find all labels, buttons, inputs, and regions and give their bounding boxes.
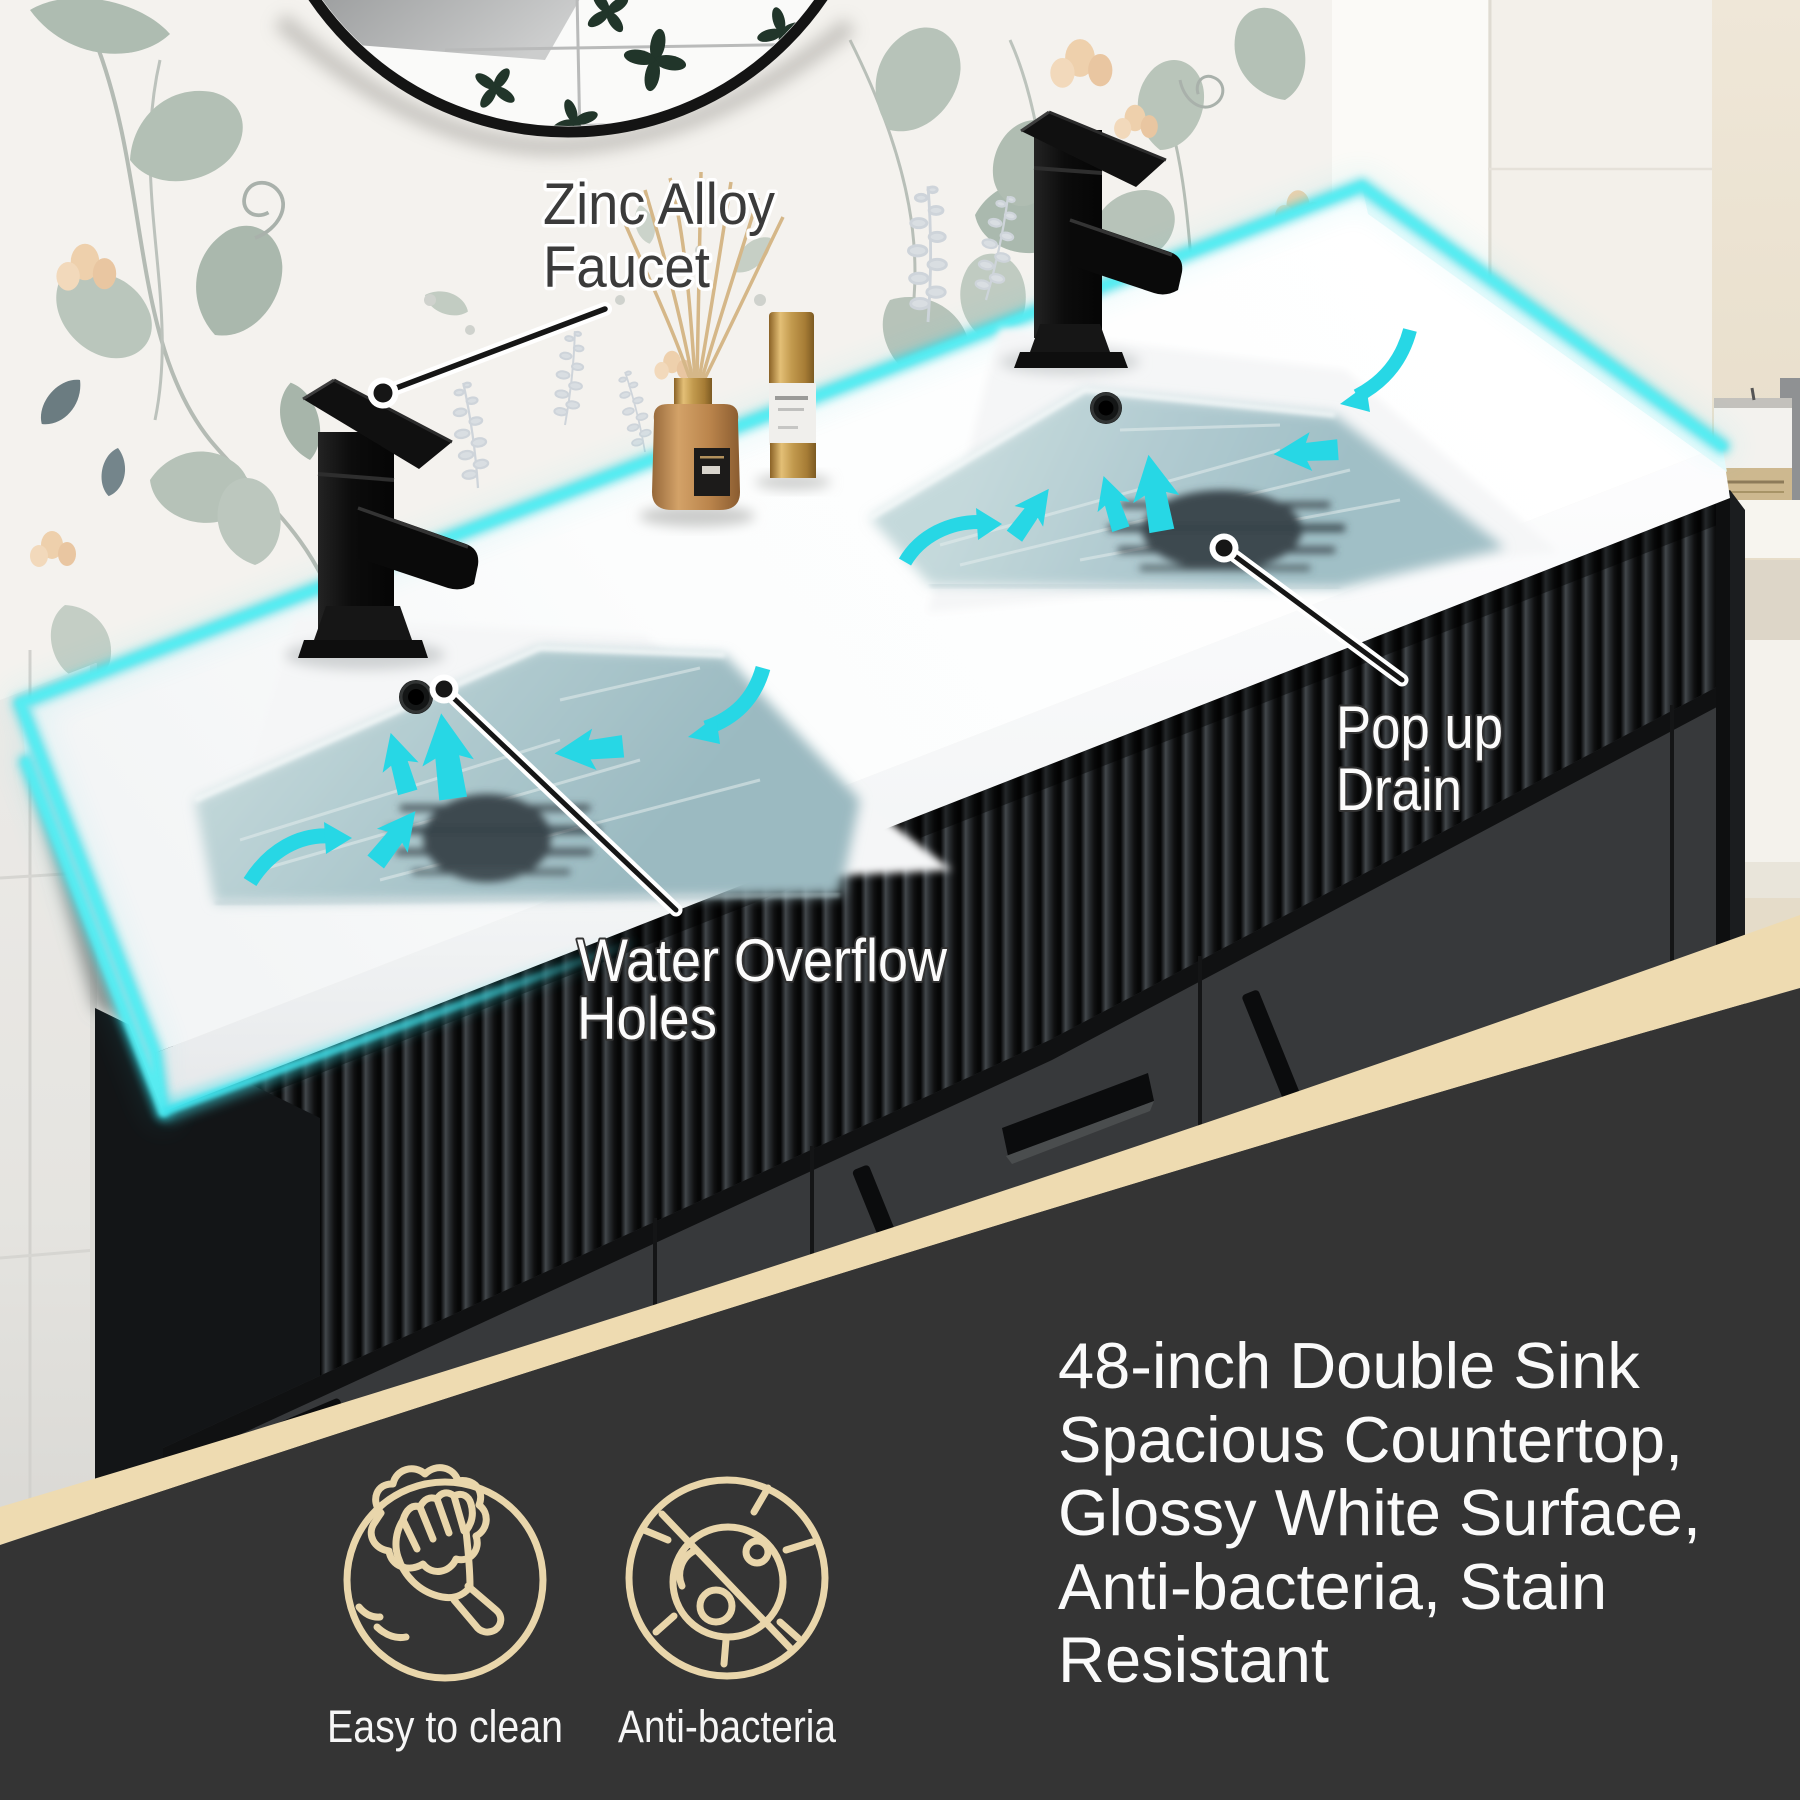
svg-text:Zinc Alloy: Zinc Alloy	[543, 172, 775, 237]
svg-text:Spacious Countertop,: Spacious Countertop,	[1058, 1403, 1683, 1476]
svg-text:Pop up: Pop up	[1336, 694, 1503, 761]
svg-text:Easy to clean: Easy to clean	[327, 1701, 563, 1752]
svg-text:Drain: Drain	[1336, 756, 1462, 823]
svg-text:Holes: Holes	[577, 985, 717, 1052]
svg-text:Anti-bacteria: Anti-bacteria	[618, 1701, 837, 1752]
svg-text:48-inch Double Sink: 48-inch Double Sink	[1058, 1329, 1640, 1402]
svg-text:Glossy White Surface,: Glossy White Surface,	[1058, 1476, 1701, 1549]
svg-text:Anti-bacteria, Stain: Anti-bacteria, Stain	[1058, 1550, 1607, 1623]
svg-text:Water Overflow: Water Overflow	[577, 927, 948, 994]
svg-text:Faucet: Faucet	[543, 235, 710, 300]
svg-text:Resistant: Resistant	[1058, 1623, 1329, 1696]
